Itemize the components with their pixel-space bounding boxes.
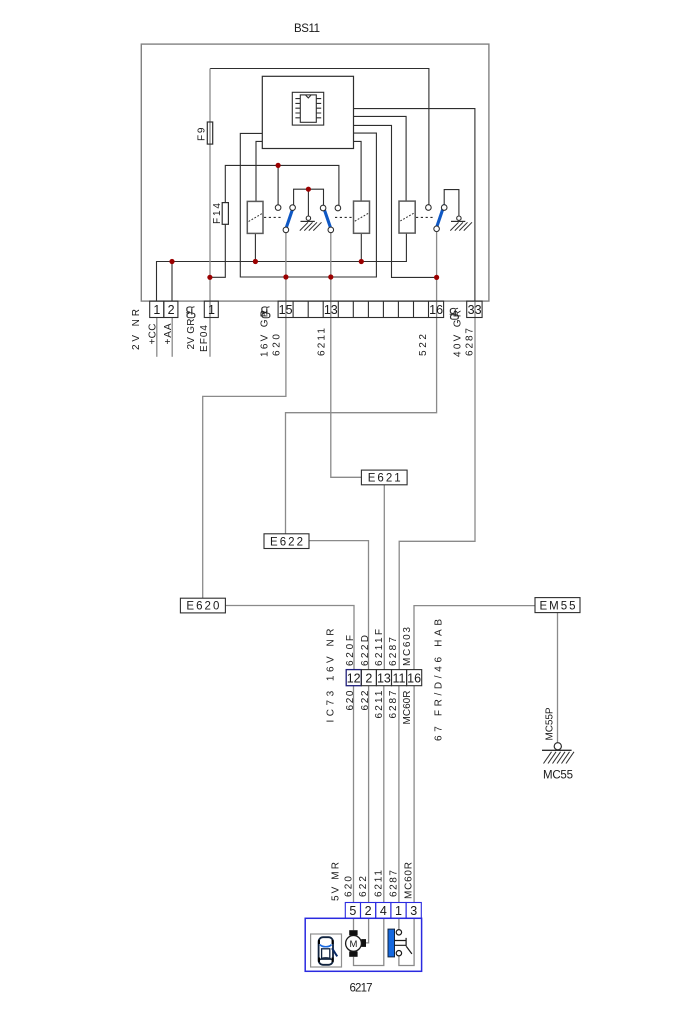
svg-text:2: 2 [168, 303, 175, 317]
svg-text:15: 15 [279, 303, 293, 317]
svg-text:2: 2 [365, 671, 372, 685]
svg-text:6211F: 6211F [374, 629, 385, 666]
svg-text:13: 13 [324, 303, 338, 317]
svg-text:MC55P: MC55P [545, 707, 556, 740]
svg-text:3: 3 [410, 904, 417, 918]
svg-text:2V GR: 2V GR [186, 319, 197, 350]
svg-text:620: 620 [345, 690, 356, 710]
svg-text:MC55: MC55 [543, 770, 573, 782]
svg-text:1: 1 [208, 303, 215, 317]
svg-text:2: 2 [365, 904, 372, 918]
svg-text:M: M [350, 939, 358, 950]
svg-text:12: 12 [347, 671, 361, 685]
svg-text:5: 5 [349, 904, 356, 918]
svg-text:622D: 622D [360, 635, 371, 666]
svg-text:11: 11 [393, 671, 406, 685]
svg-text:4: 4 [380, 904, 387, 918]
svg-text:522: 522 [418, 334, 429, 356]
svg-text:F9: F9 [197, 127, 208, 141]
svg-text:6287: 6287 [388, 690, 399, 718]
svg-text:MC603: MC603 [402, 627, 413, 666]
svg-text:F14: F14 [212, 203, 223, 224]
svg-text:6217: 6217 [350, 983, 373, 995]
svg-text:EF04: EF04 [199, 325, 210, 352]
svg-text:+CC: +CC [148, 324, 159, 345]
svg-text:MC60R: MC60R [402, 691, 413, 725]
svg-text:1: 1 [153, 303, 160, 317]
svg-text:16: 16 [429, 303, 443, 317]
svg-text:+AA: +AA [163, 323, 174, 344]
svg-text:33: 33 [468, 303, 482, 317]
svg-text:622: 622 [360, 690, 371, 710]
svg-text:16: 16 [407, 671, 421, 685]
svg-text:BS11: BS11 [294, 23, 320, 35]
svg-text:MC60R: MC60R [404, 862, 415, 899]
svg-text:622: 622 [358, 876, 369, 897]
svg-text:EM55: EM55 [540, 600, 576, 612]
svg-text:6287: 6287 [464, 328, 475, 356]
svg-text:1: 1 [395, 904, 402, 918]
svg-text:13: 13 [377, 671, 391, 685]
svg-text:620: 620 [343, 876, 354, 897]
svg-text:620: 620 [272, 334, 283, 356]
svg-text:6287: 6287 [388, 637, 399, 666]
svg-text:6287: 6287 [388, 870, 399, 897]
